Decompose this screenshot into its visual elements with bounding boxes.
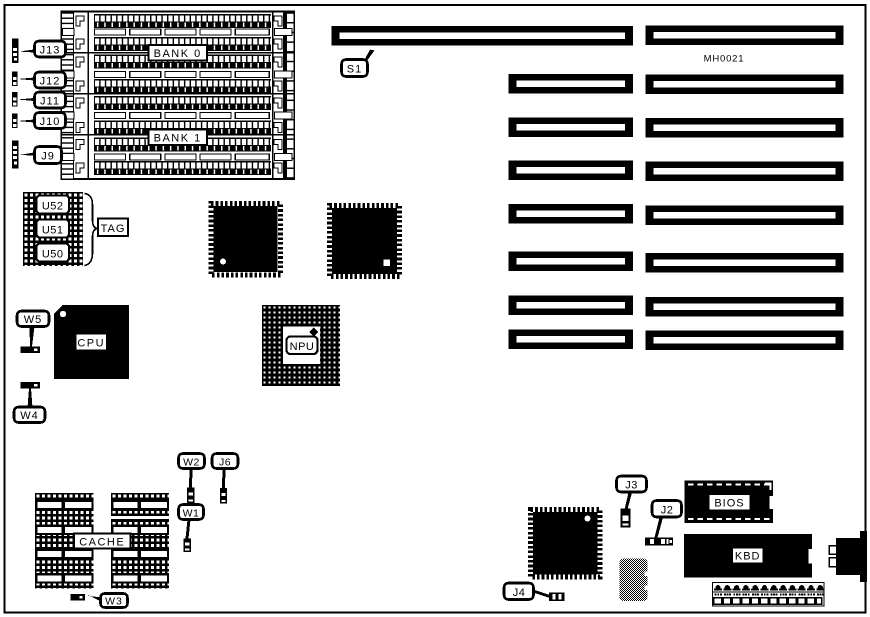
svg-text:U51: U51 bbox=[42, 225, 64, 237]
svg-text:J13: J13 bbox=[40, 45, 61, 57]
svg-text:J4: J4 bbox=[513, 587, 526, 599]
svg-text:J9: J9 bbox=[41, 151, 55, 163]
svg-text:S1: S1 bbox=[347, 64, 362, 76]
svg-text:KBD: KBD bbox=[735, 551, 761, 563]
svg-text:J10: J10 bbox=[40, 116, 61, 128]
svg-text:BANK 1: BANK 1 bbox=[154, 133, 202, 145]
svg-text:BANK 0: BANK 0 bbox=[154, 48, 202, 60]
svg-text:CACHE: CACHE bbox=[79, 537, 125, 549]
svg-text:W5: W5 bbox=[24, 314, 43, 326]
svg-text:NPU: NPU bbox=[290, 341, 315, 353]
svg-text:J2: J2 bbox=[661, 505, 674, 517]
svg-text:W4: W4 bbox=[20, 410, 39, 422]
svg-text:J12: J12 bbox=[40, 76, 61, 88]
svg-text:CPU: CPU bbox=[77, 338, 105, 350]
svg-text:W3: W3 bbox=[105, 596, 123, 608]
svg-text:J6: J6 bbox=[219, 457, 231, 469]
svg-text:U50: U50 bbox=[42, 249, 64, 261]
svg-text:W1: W1 bbox=[183, 508, 200, 520]
svg-text:W2: W2 bbox=[183, 457, 200, 469]
svg-text:MH0021: MH0021 bbox=[704, 54, 745, 65]
svg-text:TAG: TAG bbox=[101, 223, 126, 235]
svg-text:J3: J3 bbox=[625, 480, 638, 492]
svg-text:BIOS: BIOS bbox=[714, 498, 744, 510]
svg-text:J11: J11 bbox=[40, 96, 60, 108]
svg-text:U52: U52 bbox=[42, 201, 64, 213]
